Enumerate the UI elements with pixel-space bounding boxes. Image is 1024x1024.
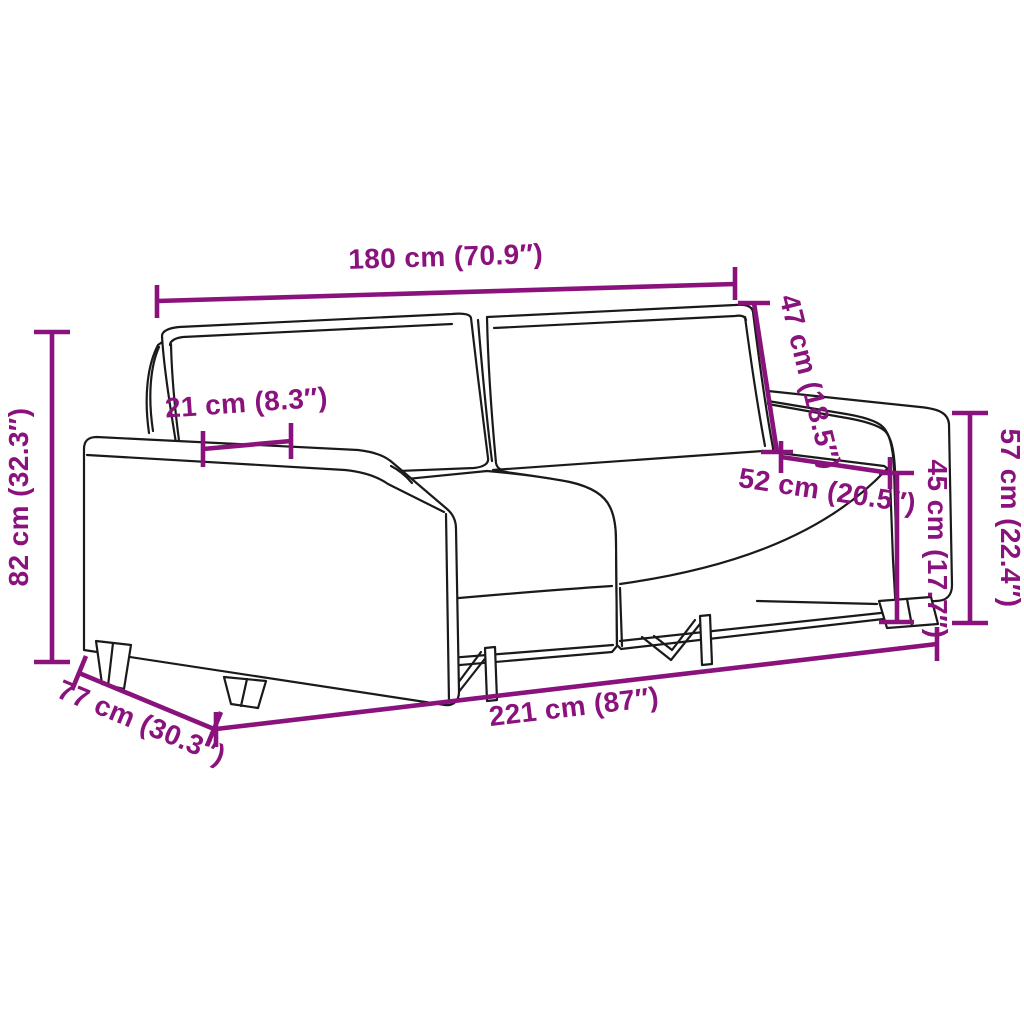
dim-line	[157, 284, 735, 301]
dim-label: 47 cm (18.5″)	[774, 291, 847, 472]
diagram-stage: 180 cm (70.9″) 47 cm (18.5″) 52 cm (20.5…	[0, 0, 1024, 1024]
dimension-overall-height: 82 cm (32.3″)	[3, 332, 70, 662]
dimension-overall-width: 180 cm (70.9″)	[157, 238, 735, 318]
sofa-dimension-diagram: 180 cm (70.9″) 47 cm (18.5″) 52 cm (20.5…	[0, 0, 1024, 1024]
dim-label: 57 cm (22.4″)	[995, 429, 1024, 608]
dimension-overall-depth: 77 cm (30.3″)	[53, 656, 230, 771]
left-armrest	[84, 437, 459, 705]
dimension-armrest-height: 57 cm (22.4″)	[952, 413, 1024, 623]
sled-leg-left-post	[485, 647, 497, 701]
sled-leg-right-post	[700, 615, 712, 665]
dim-label: 45 cm (17.7″)	[922, 460, 953, 639]
back-cushion-right	[487, 305, 773, 471]
dim-label: 180 cm (70.9″)	[348, 238, 544, 275]
dim-label: 82 cm (32.3″)	[3, 408, 34, 587]
